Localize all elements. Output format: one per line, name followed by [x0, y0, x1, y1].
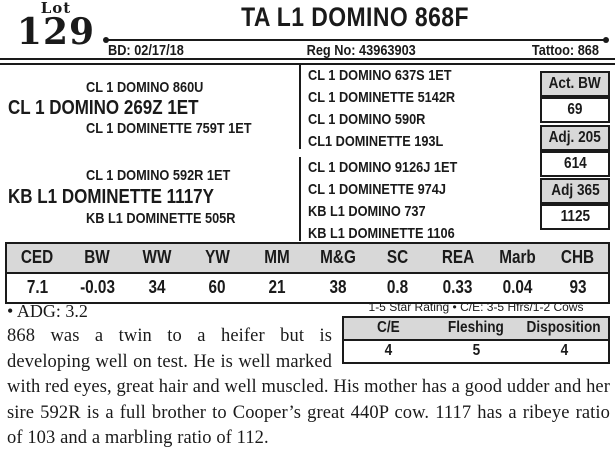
- star-rating-caption: 1-5 Star Rating • C/E: 3-5 Hfrs/1-2 Cows: [342, 300, 610, 316]
- sire-grandsire: CL 1 DOMINO 860U: [86, 80, 224, 95]
- dam-granddam: KB L1 DOMINETTE 505R: [86, 211, 262, 226]
- epd-header-cell: CHB: [548, 244, 608, 272]
- epd-value-row: 7.1 -0.03 34 60 21 38 0.8 0.33 0.04 93: [7, 274, 608, 302]
- epd-header-cell: YW: [187, 244, 247, 272]
- notes-section: 1-5 Star Rating • C/E: 3-5 Hfrs/1-2 Cows…: [7, 300, 610, 452]
- epd-header-cell: CED: [7, 244, 67, 272]
- star-value-cell: 5: [432, 341, 520, 362]
- great-grandparent: CL 1 DOMINO 9126J 1ET: [308, 160, 484, 175]
- double-rule: [0, 58, 615, 65]
- pedigree-divider-bottom: [299, 157, 301, 241]
- great-grandparent: KB L1 DOMINETTE 1106: [308, 226, 481, 241]
- page-title: TA L1 DOMINO 868F: [110, 2, 601, 32]
- epd-header-cell: REA: [428, 244, 488, 272]
- star-value-row: 4 5 4: [344, 341, 608, 362]
- epd-header-cell: BW: [67, 244, 127, 272]
- epd-header-cell: SC: [368, 244, 428, 272]
- epd-header-cell: WW: [127, 244, 187, 272]
- great-grandparent: CL1 DOMINETTE 193L: [308, 134, 467, 149]
- adj-205-label: Adj. 205: [540, 125, 610, 151]
- star-value-cell: 4: [344, 341, 432, 362]
- epd-table: CED BW WW YW MM M&G SC REA Marb CHB 7.1 …: [5, 242, 610, 304]
- great-grandparent: CL 1 DOMINETTE 5142R: [308, 90, 481, 105]
- sire-granddam: CL 1 DOMINETTE 759T 1ET: [86, 121, 281, 136]
- epd-value-cell: 34: [127, 274, 187, 302]
- pedigree-section: CL 1 DOMINO 860U CL 1 DOMINO 269Z 1ET CL…: [0, 65, 615, 242]
- actual-bw-value: 69: [540, 97, 610, 123]
- animal-name: TA L1 DOMINO 868F: [242, 2, 470, 32]
- bullet-icon: •: [7, 301, 13, 321]
- great-grandparent: KB L1 DOMINO 737: [308, 204, 446, 219]
- great-grandparent: CL 1 DOMINO 590R: [308, 112, 446, 127]
- adj-205-value: 614: [540, 151, 610, 177]
- pedigree-divider-top: [299, 65, 301, 149]
- id-row: BD: 02/17/18 Reg No: 43963903 Tattoo: 86…: [108, 42, 605, 59]
- epd-header-cell: MM: [247, 244, 307, 272]
- epd-value-cell: 0.8: [368, 274, 428, 302]
- dam-grandsire: CL 1 DOMINO 592R 1ET: [86, 168, 256, 183]
- adg-value: ADG: 3.2: [17, 301, 88, 321]
- sire-name: CL 1 DOMINO 269Z 1ET: [8, 98, 232, 118]
- epd-value-cell: 60: [187, 274, 247, 302]
- adj-365-label: Adj 365: [540, 178, 610, 204]
- star-header-cell: Fleshing: [432, 318, 520, 339]
- adj-365-value: 1125: [540, 204, 610, 230]
- great-grandparent: CL 1 DOMINO 637S 1ET: [308, 68, 477, 83]
- actual-bw-label: Act. BW: [540, 71, 610, 97]
- dam-name: KB L1 DOMINETTE 1117Y: [8, 187, 250, 207]
- catalog-page: Lot 129 TA L1 DOMINO 868F BD: 02/17/18 R…: [0, 0, 615, 460]
- epd-value-cell: 38: [307, 274, 367, 302]
- star-rating-box: 1-5 Star Rating • C/E: 3-5 Hfrs/1-2 Cows…: [342, 300, 610, 364]
- epd-header-cell: M&G: [307, 244, 367, 272]
- epd-value-cell: 0.04: [488, 274, 548, 302]
- epd-value-cell: 7.1: [7, 274, 67, 302]
- star-rating-table: C/E Fleshing Disposition 4 5 4: [342, 316, 610, 364]
- epd-header-row: CED BW WW YW MM M&G SC REA Marb CHB: [7, 244, 608, 274]
- lot-block: Lot 129: [6, 1, 106, 48]
- registration-number: Reg No: 43963903: [307, 42, 416, 59]
- tattoo: Tattoo: 868: [532, 42, 599, 59]
- epd-header-cell: Marb: [488, 244, 548, 272]
- header-rule: [106, 39, 606, 41]
- birth-date: BD: 02/17/18: [108, 42, 184, 59]
- star-header-cell: Disposition: [520, 318, 608, 339]
- star-header-row: C/E Fleshing Disposition: [344, 318, 608, 341]
- epd-value-cell: -0.03: [67, 274, 127, 302]
- star-header-cell: C/E: [344, 318, 432, 339]
- epd-value-cell: 21: [247, 274, 307, 302]
- great-grandparent: CL 1 DOMINETTE 974J: [308, 182, 470, 197]
- epd-value-cell: 0.33: [428, 274, 488, 302]
- epd-value-cell: 93: [548, 274, 608, 302]
- star-value-cell: 4: [520, 341, 608, 362]
- lot-number: 129: [6, 16, 106, 48]
